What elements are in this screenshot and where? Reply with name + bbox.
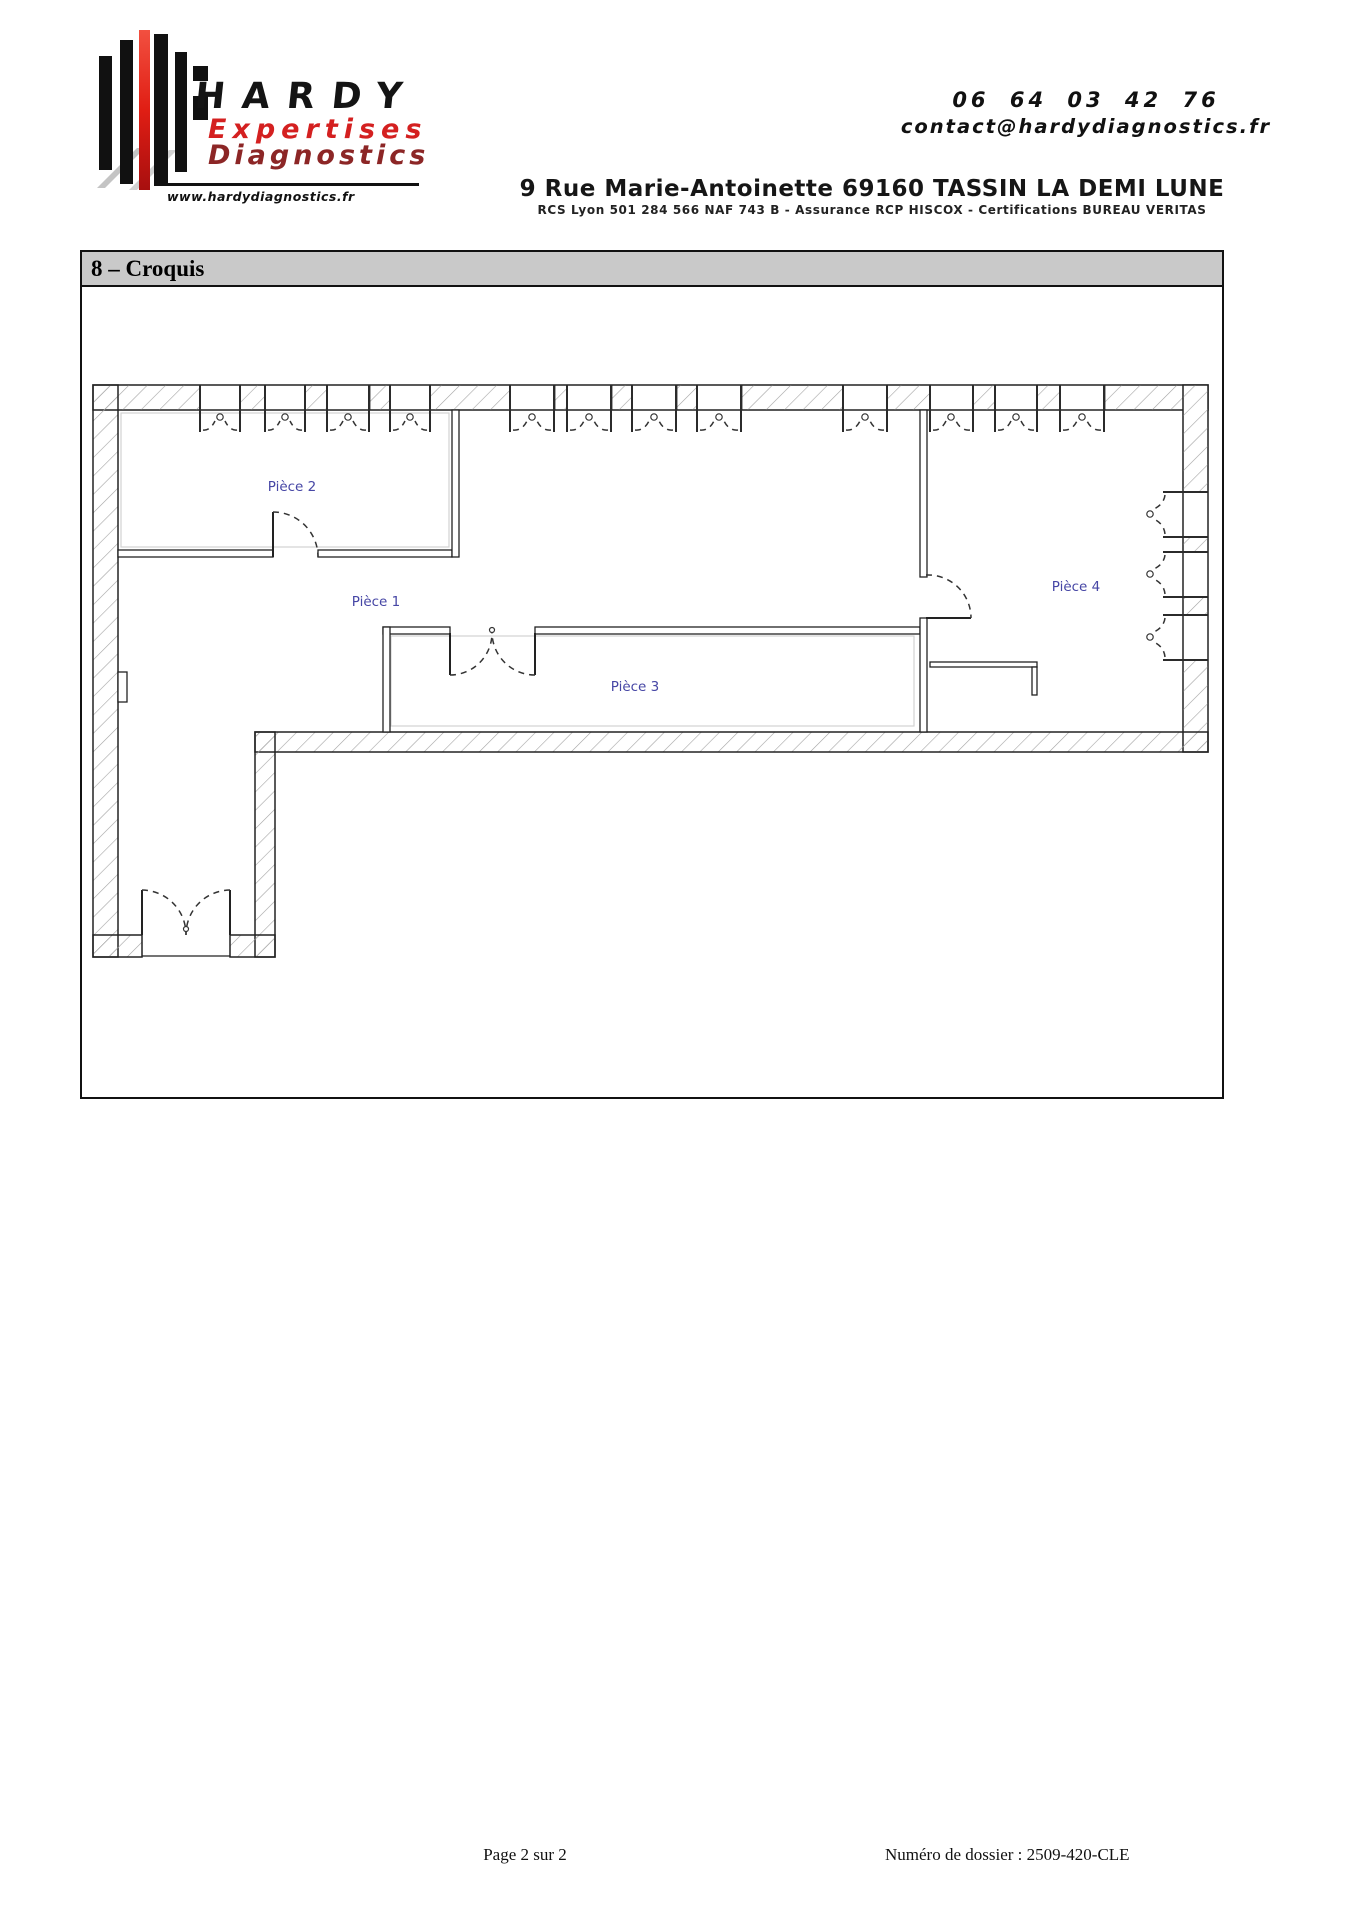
- room-label-piece-1: Pièce 1: [352, 594, 401, 610]
- company-address: 9 Rue Marie-Antoinette 69160 TASSIN LA D…: [392, 176, 1352, 202]
- footer-page-number: Page 2 sur 2: [400, 1845, 650, 1865]
- outer-walls: [93, 385, 1208, 957]
- room-label-piece-4: Pièce 4: [1052, 579, 1101, 595]
- company-legal-line: RCS Lyon 501 284 566 NAF 743 B - Assuran…: [392, 203, 1352, 217]
- email-address: contact@hardydiagnostics.fr: [880, 115, 1292, 138]
- entry-double-door: [142, 890, 230, 935]
- logo-brand-text: HARDY: [193, 76, 421, 117]
- room-label-piece-3: Pièce 3: [611, 679, 660, 695]
- double-door-piece3: [450, 628, 535, 676]
- logo-website-url: www.hardydiagnostics.fr: [167, 183, 419, 204]
- phone-number: 06 64 03 42 76: [880, 88, 1292, 112]
- croquis-section: 8 – Croquis: [80, 250, 1224, 1099]
- contact-block: 06 64 03 42 76 contact@hardydiagnostics.…: [880, 88, 1292, 138]
- document-page: HARDY Expertises Diagnostics www.hardydi…: [0, 0, 1356, 1920]
- footer-dossier-number: Numéro de dossier : 2509-420-CLE: [885, 1845, 1130, 1865]
- door-piece2: [273, 512, 318, 557]
- section-title: 8 – Croquis: [82, 252, 1222, 287]
- floor-plan-drawing: Pièce 1 Pièce 2 Pièce 3 Pièce 4: [85, 300, 1220, 970]
- partition-walls: [118, 410, 1037, 732]
- door-piece4: [926, 575, 971, 618]
- logo-diagnostics-text: Diagnostics: [208, 140, 429, 171]
- room-label-piece-2: Pièce 2: [268, 479, 317, 495]
